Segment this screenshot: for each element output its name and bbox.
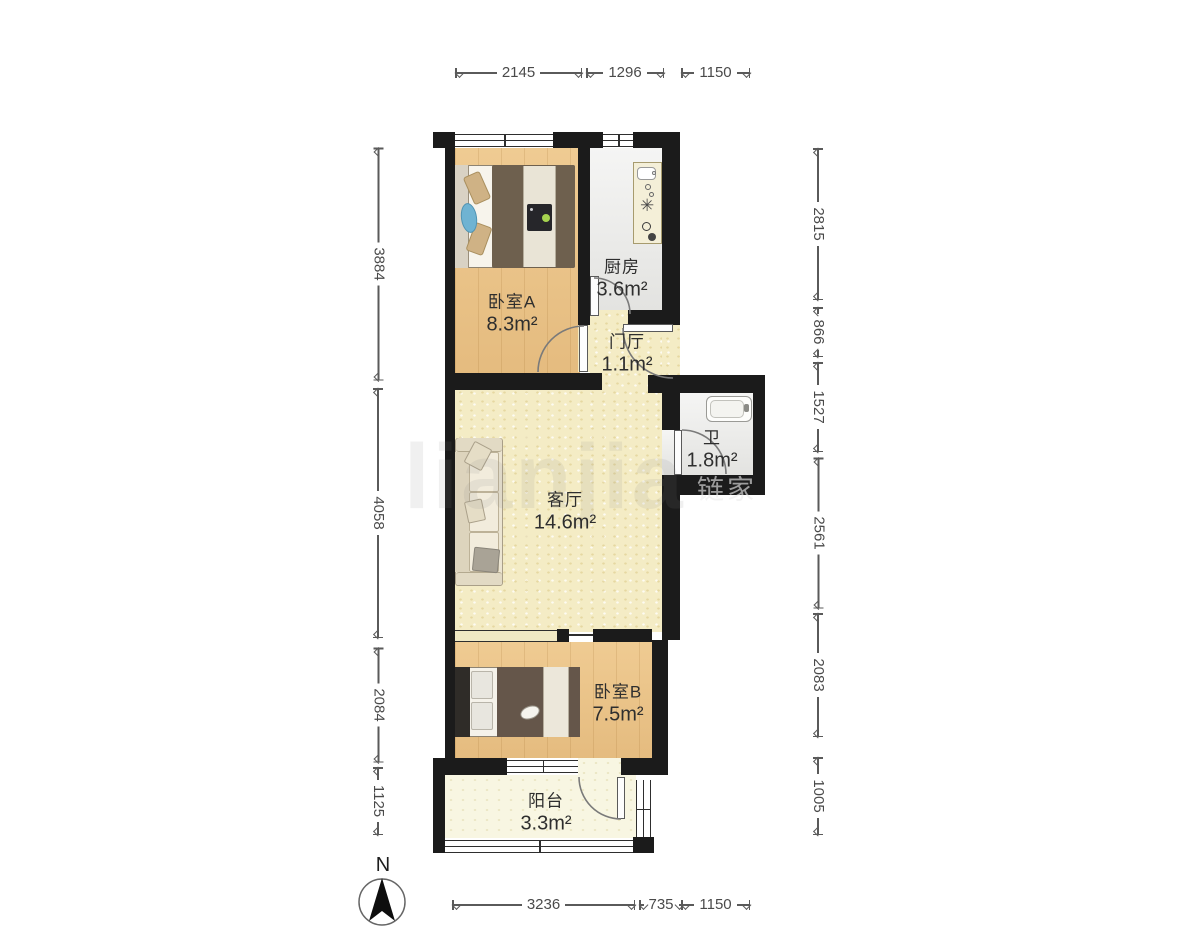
bathtub-inner <box>710 400 744 418</box>
dimension-left-2: 2084 <box>369 647 387 762</box>
pillow-icon <box>471 702 493 730</box>
balcony-door-threshold <box>578 758 621 775</box>
dimension-top-2: 1150 <box>681 64 750 82</box>
dimension-label: 2083 <box>809 653 827 696</box>
wall-segment <box>662 148 680 325</box>
wall-segment <box>628 310 662 325</box>
dimension-right-5: 1005 <box>809 757 827 835</box>
room-area: 7.5m² <box>592 704 643 727</box>
dim-arrow-line <box>817 759 819 775</box>
room-name: 卫 <box>686 424 737 449</box>
dim-arrow-line <box>377 149 379 242</box>
room-name: 客厅 <box>534 486 596 511</box>
dimension-label: 1527 <box>809 385 827 428</box>
dim-arrow-line <box>683 904 695 906</box>
wall-segment <box>753 393 765 477</box>
window-bedroom-b <box>507 760 578 773</box>
dim-arrow-line <box>647 72 663 74</box>
bed-duvet-edge <box>569 667 580 737</box>
floor-plan-canvas: ✳ <box>0 0 1200 938</box>
partition-living-bedroom-b <box>455 630 557 642</box>
wall-segment <box>557 629 569 642</box>
wall-segment <box>433 775 445 853</box>
pot-icon <box>642 222 651 231</box>
dim-arrow-line <box>817 818 819 834</box>
wall-segment <box>553 132 603 148</box>
room-label-bedroom-a: 卧室A 8.3m² <box>486 288 537 337</box>
dimension-label: 866 <box>809 314 827 349</box>
bathtub-faucet-dot <box>744 404 749 412</box>
faucet-dot <box>652 171 656 175</box>
window-bedroom-a <box>455 134 553 147</box>
dim-arrow-line <box>377 726 379 760</box>
door-leaf-bedroom-a <box>579 325 588 372</box>
room-label-bathroom: 卫 1.8m² <box>686 424 737 473</box>
dim-arrow-line <box>454 904 522 906</box>
dim-arrow-line <box>817 150 819 203</box>
room-label-living: 客厅 14.6m² <box>534 486 596 535</box>
wall-segment <box>445 632 455 758</box>
dim-arrow-line <box>817 615 819 654</box>
dim-arrow-line <box>817 459 819 511</box>
dim-arrow-line <box>817 429 819 451</box>
pot-dark-icon <box>648 233 656 241</box>
dim-arrow-line <box>540 72 580 74</box>
partition-line <box>569 634 593 636</box>
dim-arrow-line <box>565 904 633 906</box>
dim-arrow-line <box>377 649 379 683</box>
dimension-top-0: 2145 <box>455 64 582 82</box>
room-name: 厨房 <box>596 253 647 278</box>
dim-arrow-line <box>817 697 819 736</box>
room-name: 卧室B <box>592 678 643 703</box>
dimension-label: 4058 <box>369 491 387 534</box>
dim-arrow-line <box>377 769 379 780</box>
dim-arrow-line <box>817 309 819 315</box>
door-leaf-balcony <box>617 777 625 819</box>
wall-segment <box>445 148 455 373</box>
dimension-label: 1150 <box>694 64 736 82</box>
stove-burner-icon: ✳ <box>640 196 654 216</box>
laptop-dot <box>542 214 550 222</box>
dimension-left-1: 4058 <box>369 388 387 638</box>
window-balcony-bottom <box>445 840 633 853</box>
room-name: 阳台 <box>520 787 571 812</box>
dimension-label: 2084 <box>369 683 387 726</box>
dimension-left-3: 1125 <box>369 767 387 835</box>
dimension-label: 1125 <box>369 780 387 822</box>
dimension-right-2: 1527 <box>809 362 827 452</box>
dimension-bottom-1: 735 <box>639 896 679 914</box>
dim-arrow-line <box>817 246 819 299</box>
bed-duvet <box>497 667 545 737</box>
dimension-right-1: 866 <box>809 307 827 357</box>
room-name: 卧室A <box>486 288 537 313</box>
dimension-label: 2815 <box>809 202 827 245</box>
dim-arrow-line <box>817 554 819 606</box>
dim-arrow-line <box>377 535 379 637</box>
room-area: 14.6m² <box>534 512 596 535</box>
wall-segment <box>652 640 668 758</box>
dimension-label: 735 <box>644 896 679 914</box>
dimension-right-3: 2561 <box>809 457 827 608</box>
room-label-hall: 门厅 1.1m² <box>601 328 652 377</box>
dimension-label: 1296 <box>603 64 646 82</box>
wall-segment <box>593 629 652 642</box>
room-area: 1.8m² <box>686 450 737 473</box>
window-kitchen <box>603 134 633 147</box>
room-label-kitchen: 厨房 3.6m² <box>596 253 647 302</box>
dim-arrow-line <box>588 72 604 74</box>
room-name: 门厅 <box>601 328 652 353</box>
room-label-balcony: 阳台 3.3m² <box>520 787 571 836</box>
wall-segment <box>662 475 680 640</box>
dim-arrow-line <box>377 822 379 833</box>
wall-segment <box>662 475 765 495</box>
dimension-label: 1005 <box>809 774 827 817</box>
dim-arrow-line <box>737 904 749 906</box>
room-label-bedroom-b: 卧室B 7.5m² <box>592 678 643 727</box>
front-door-threshold <box>662 325 680 375</box>
dim-arrow-line <box>683 72 695 74</box>
room-area: 3.3m² <box>520 813 571 836</box>
wall-segment <box>433 758 507 775</box>
wall-segment <box>633 132 680 148</box>
room-area: 8.3m² <box>486 314 537 337</box>
wall-segment <box>445 373 602 390</box>
laptop-dot-small <box>530 208 533 211</box>
bed-headboard <box>455 667 470 737</box>
dimension-right-0: 2815 <box>809 148 827 300</box>
wall-segment <box>633 837 654 853</box>
bed-runner <box>543 667 569 737</box>
compass-circle <box>359 879 405 925</box>
wall-segment <box>433 132 455 148</box>
room-area: 1.1m² <box>601 354 652 377</box>
knob-dot <box>645 184 651 190</box>
compass-north-arrow <box>369 878 395 921</box>
dim-arrow-line <box>457 72 497 74</box>
door-leaf-bathroom <box>674 430 682 475</box>
dimension-top-1: 1296 <box>586 64 664 82</box>
window-balcony-right <box>636 780 651 837</box>
dim-arrow-line <box>817 364 819 386</box>
dimension-left-0: 3884 <box>369 147 387 380</box>
wall-segment <box>648 375 765 393</box>
dim-arrow-line <box>737 72 749 74</box>
dim-arrow-line <box>641 904 644 906</box>
wall-segment <box>578 148 590 325</box>
wall-segment <box>662 393 680 430</box>
dimension-label: 3884 <box>369 242 387 285</box>
dimension-bottom-2: 1150 <box>681 896 750 914</box>
sofa-armrest <box>456 572 502 585</box>
dimension-bottom-0: 3236 <box>452 896 635 914</box>
room-area: 3.6m² <box>596 279 647 302</box>
dim-arrow-line <box>377 390 379 492</box>
dimension-label: 2561 <box>809 511 827 554</box>
dimension-label: 3236 <box>522 896 565 914</box>
dim-arrow-line <box>377 285 379 378</box>
dim-arrow-line <box>817 350 819 356</box>
dimension-right-4: 2083 <box>809 613 827 737</box>
compass-north-label: N <box>370 854 396 877</box>
wall-segment <box>445 388 455 632</box>
dimension-label: 1150 <box>694 896 736 914</box>
wall-segment <box>621 758 668 775</box>
pillow-icon <box>471 671 493 699</box>
blanket-icon <box>472 547 500 574</box>
dimension-label: 2145 <box>497 64 540 82</box>
compass-icon <box>359 878 405 925</box>
